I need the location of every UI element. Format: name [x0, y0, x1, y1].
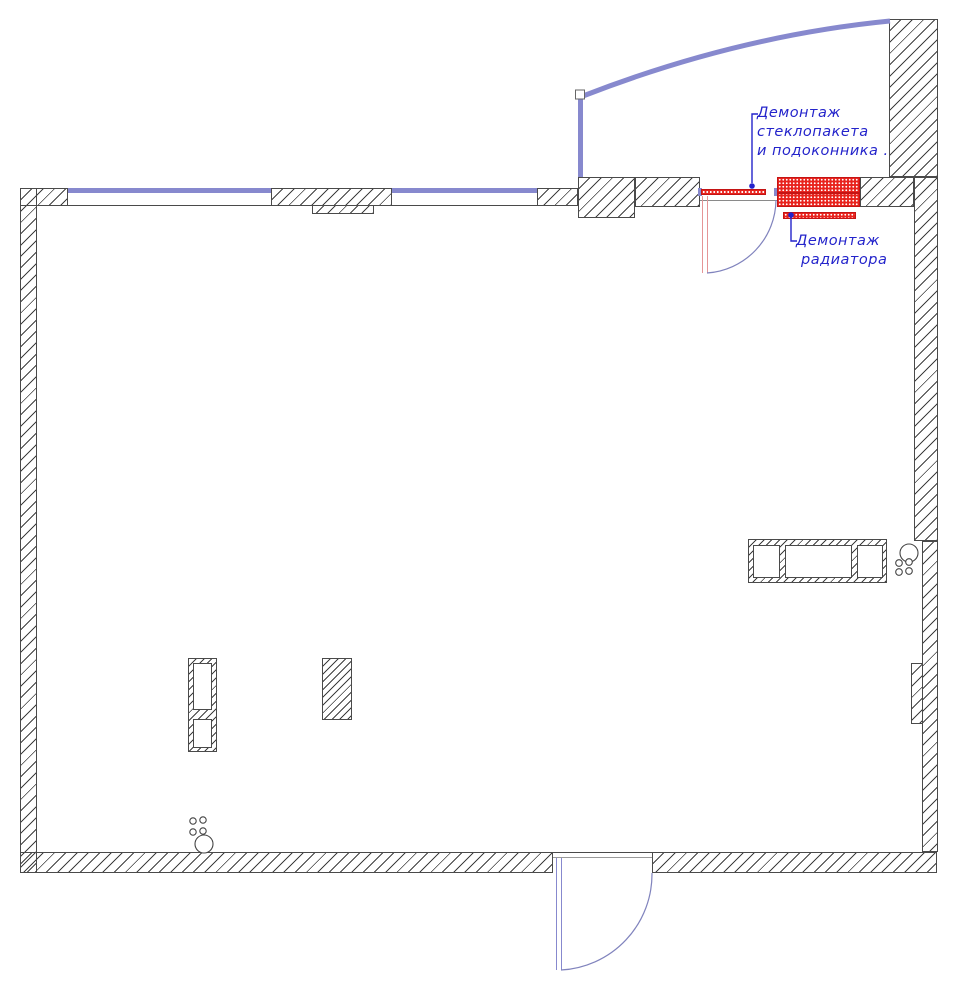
annotation-line: и подоконника . [757, 142, 889, 161]
wall-top-pier-middle-step [312, 205, 374, 214]
window-glazing-top-middle [392, 188, 537, 193]
bottom-door-opening-line-outer [553, 852, 652, 853]
bay-sill-wall-left [635, 177, 700, 207]
wall-top-right-block [889, 19, 938, 177]
cabinet-tall-inner-bottom [193, 719, 212, 748]
bay-corner-block [578, 177, 635, 218]
wall-top-pier-left [20, 188, 68, 206]
outlet-symbol-right [896, 544, 918, 575]
bottom-door-leaf [556, 858, 562, 970]
annotation-line: стеклопакета [757, 123, 889, 142]
floor-plan: Демонтаж стеклопакета и подоконника . Де… [0, 0, 958, 990]
wall-right-pilaster [911, 663, 923, 724]
wall-left [20, 188, 37, 873]
demolition-glazing-strip [701, 189, 766, 195]
wall-right-lower [922, 541, 938, 852]
bottom-door-swing-arc [561, 873, 652, 970]
wall-top-pier-right [537, 188, 578, 206]
wall-right-upper [914, 177, 938, 541]
column-block [322, 658, 352, 720]
wall-bottom-left-segment [20, 852, 553, 873]
bay-opening-sill-line [700, 200, 777, 201]
window-sill-line-left [68, 205, 271, 206]
bay-window-glazing-left [578, 95, 583, 177]
window-glazing-top-left [68, 188, 271, 193]
bench-inner-right [857, 545, 883, 578]
cabinet-tall-inner-top [193, 663, 212, 710]
annotation-window-demolition: Демонтаж стеклопакета и подоконника . [757, 104, 889, 161]
annotation-line: радиатора [796, 251, 887, 270]
bottom-door-opening-line-inner [553, 857, 652, 858]
bay-window-curved-glazing [583, 21, 890, 96]
wall-top-pier-middle [271, 188, 392, 206]
window-sill-line-middle [392, 205, 537, 206]
demolition-radiator-strip [783, 212, 856, 219]
annotation-line: Демонтаж [757, 104, 889, 123]
wall-bottom-right-segment [652, 852, 937, 873]
bay-door-leaf [702, 196, 708, 273]
bay-door-swing-arc [707, 200, 776, 273]
demolition-windowsill-midline [777, 192, 860, 194]
annotation-line: Демонтаж [796, 232, 887, 251]
bay-sill-wall-right [860, 177, 914, 207]
bench-inner-middle [785, 545, 852, 578]
outlet-symbol-bottom-left [190, 817, 213, 853]
bench-inner-left [753, 545, 780, 578]
annotation-radiator-demolition: Демонтаж радиатора [796, 232, 887, 270]
window-demolition-leader-dot [749, 183, 755, 189]
